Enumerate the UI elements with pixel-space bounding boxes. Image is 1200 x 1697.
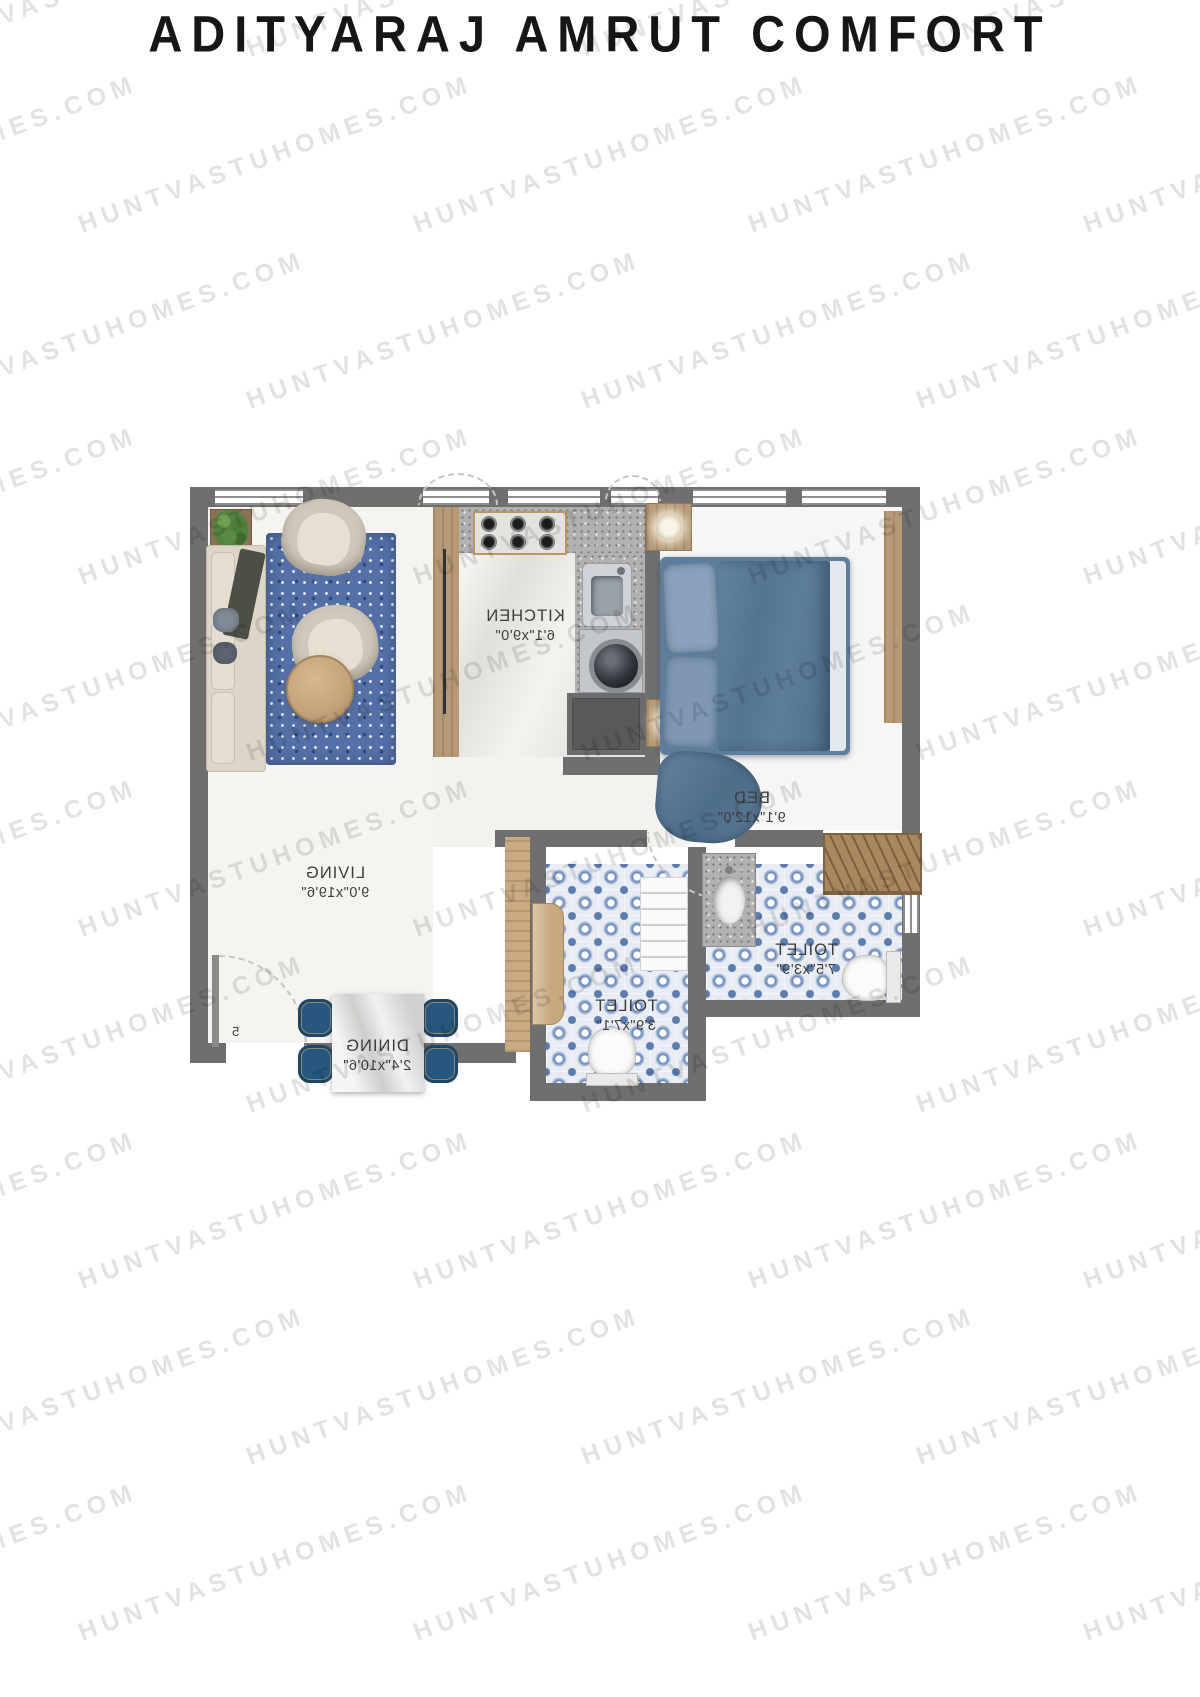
watermark-text: HUNTVASTUHOMES.COM [578, 1302, 980, 1472]
sink-basin [591, 576, 623, 616]
window-swing-arc [605, 475, 661, 501]
toilet-cistern [886, 951, 901, 1003]
window [215, 489, 303, 505]
watermark-text: HUNTVASTUHOMES.COM [75, 70, 477, 240]
watermark-text: HUNTVASTUHOMES.COM [410, 1478, 812, 1648]
watermark-text: HUNTVASTUHOMES.COM [745, 1126, 1147, 1296]
sliding-door-track [443, 549, 446, 714]
wardrobe [823, 833, 922, 895]
watermark-text: HUNTVASTUHOMES.COM [0, 422, 142, 592]
wall-kitchen-bottom [563, 757, 660, 775]
watermark-text: HUNTVASTUHOMES.COM [243, 246, 645, 416]
dining-chair [422, 999, 458, 1037]
sofa-pillow [213, 608, 239, 632]
armchair-seat [294, 510, 353, 569]
double-bed [660, 557, 850, 755]
watermark-text: HUNTVASTUHOMES.COM [745, 1478, 1147, 1648]
watermark-text: HUNTVASTUHOMES.COM [75, 1126, 477, 1296]
watermark-text: HUNTVASTUHOMES.COM [1080, 1478, 1200, 1648]
shower-area [640, 877, 688, 971]
bed-sheet-fold [830, 561, 846, 751]
unit-number: 5 [232, 1023, 239, 1041]
room-label-living: LIVING 9'0"x19'6" [275, 862, 395, 904]
toilet-vanity [702, 853, 756, 947]
coffee-table [286, 655, 354, 723]
window [693, 489, 786, 505]
watermark-text: HUNTVASTUHOMES.COM [0, 246, 310, 416]
washer-door [589, 639, 643, 693]
window-swing-arc [418, 473, 498, 505]
bed-pillow [663, 656, 718, 748]
sofa-pillow [213, 642, 237, 664]
watermark-text: HUNTVASTUHOMES.COM [1080, 1126, 1200, 1296]
washing-machine [579, 629, 643, 693]
watermark-text: HUNTVASTUHOMES.COM [1080, 422, 1200, 592]
room-label-toilet2: TOILET 3'9"x7'1" [570, 995, 682, 1037]
sink-faucet [617, 567, 625, 575]
refrigerator [567, 693, 645, 755]
watermark-text: HUNTVASTUHOMES.COM [913, 950, 1200, 1120]
gas-stove [473, 511, 567, 555]
basin-faucet [725, 866, 733, 874]
partition-living-kitchen [433, 507, 459, 757]
room-label-bed: BED 9'1"x12'0" [694, 787, 809, 829]
sofa [206, 545, 266, 772]
plant-leaves [213, 510, 249, 548]
nightstand [646, 503, 692, 551]
corridor-wood-strip [505, 837, 530, 1052]
duvet [718, 561, 830, 751]
room-label-dining: DINING 2'4"x10'6" [322, 1035, 432, 1077]
window [508, 489, 600, 505]
entrance-door-leaf [212, 955, 219, 1047]
wall-right [902, 487, 920, 865]
watermark-text: HUNTVASTUHOMES.COM [913, 598, 1200, 768]
watermark-text: HUNTVASTUHOMES.COM [75, 1478, 477, 1648]
watermark-text: HUNTVASTUHOMES.COM [243, 1302, 645, 1472]
washbasin [713, 876, 745, 924]
room-label-kitchen: KITCHEN 6'1"x9'0" [462, 605, 588, 647]
watermark-text: HUNTVASTUHOMES.COM [578, 246, 980, 416]
watermark-text: HUNTVASTUHOMES.COM [0, 70, 142, 240]
dining-chair [298, 999, 334, 1037]
watermark-text: HUNTVASTUHOMES.COM [0, 1126, 142, 1296]
table-lamp [656, 514, 682, 540]
wall-mid-b [735, 830, 823, 847]
watermark-text: HUNTVASTUHOMES.COM [913, 246, 1200, 416]
watermark-text: HUNTVASTUHOMES.COM [410, 1126, 812, 1296]
watermark-text: HUNTVASTUHOMES.COM [0, 1478, 142, 1648]
room-label-toilet1: TOILET 7'5"x3'9" [746, 939, 866, 981]
bed-pillow [663, 563, 720, 654]
watermark-text: HUNTVASTUHOMES.COM [0, 774, 142, 944]
window [802, 489, 886, 505]
watermark-text: HUNTVASTUHOMES.COM [745, 70, 1147, 240]
toilet-door-leaf [532, 903, 564, 1025]
watermark-text: HUNTVASTUHOMES.COM [410, 70, 812, 240]
watermark-text: HUNTVASTUHOMES.COM [1080, 70, 1200, 240]
kitchen-sink [582, 563, 632, 627]
watermark-text: HUNTVASTUHOMES.COM [913, 1302, 1200, 1472]
page-title: ADITYARAJ AMRUT COMFORT [0, 4, 1200, 63]
page: ADITYARAJ AMRUT COMFORT [0, 0, 1200, 1697]
sofa-cushion [211, 692, 235, 764]
watermark-text: HUNTVASTUHOMES.COM [1080, 774, 1200, 944]
floor-plan: 5 DINING 2'4"x10'6" [190, 487, 920, 1112]
watermark-text: HUNTVASTUHOMES.COM [0, 1302, 310, 1472]
bedroom-closet-strip [884, 511, 902, 723]
toilet-cistern [586, 1073, 638, 1086]
